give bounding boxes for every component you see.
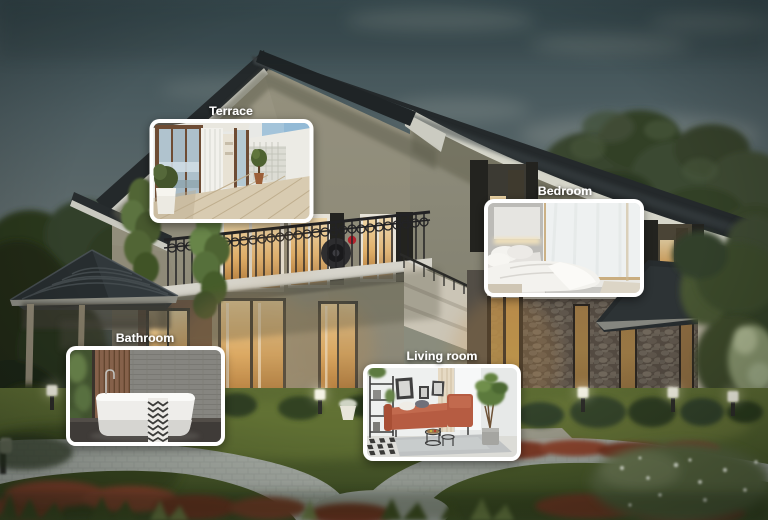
svg-text:Living room: Living room <box>407 349 478 363</box>
svg-text:Bedroom: Bedroom <box>538 184 592 198</box>
svg-text:Bathroom: Bathroom <box>116 331 175 345</box>
svg-text:Terrace: Terrace <box>209 104 253 118</box>
